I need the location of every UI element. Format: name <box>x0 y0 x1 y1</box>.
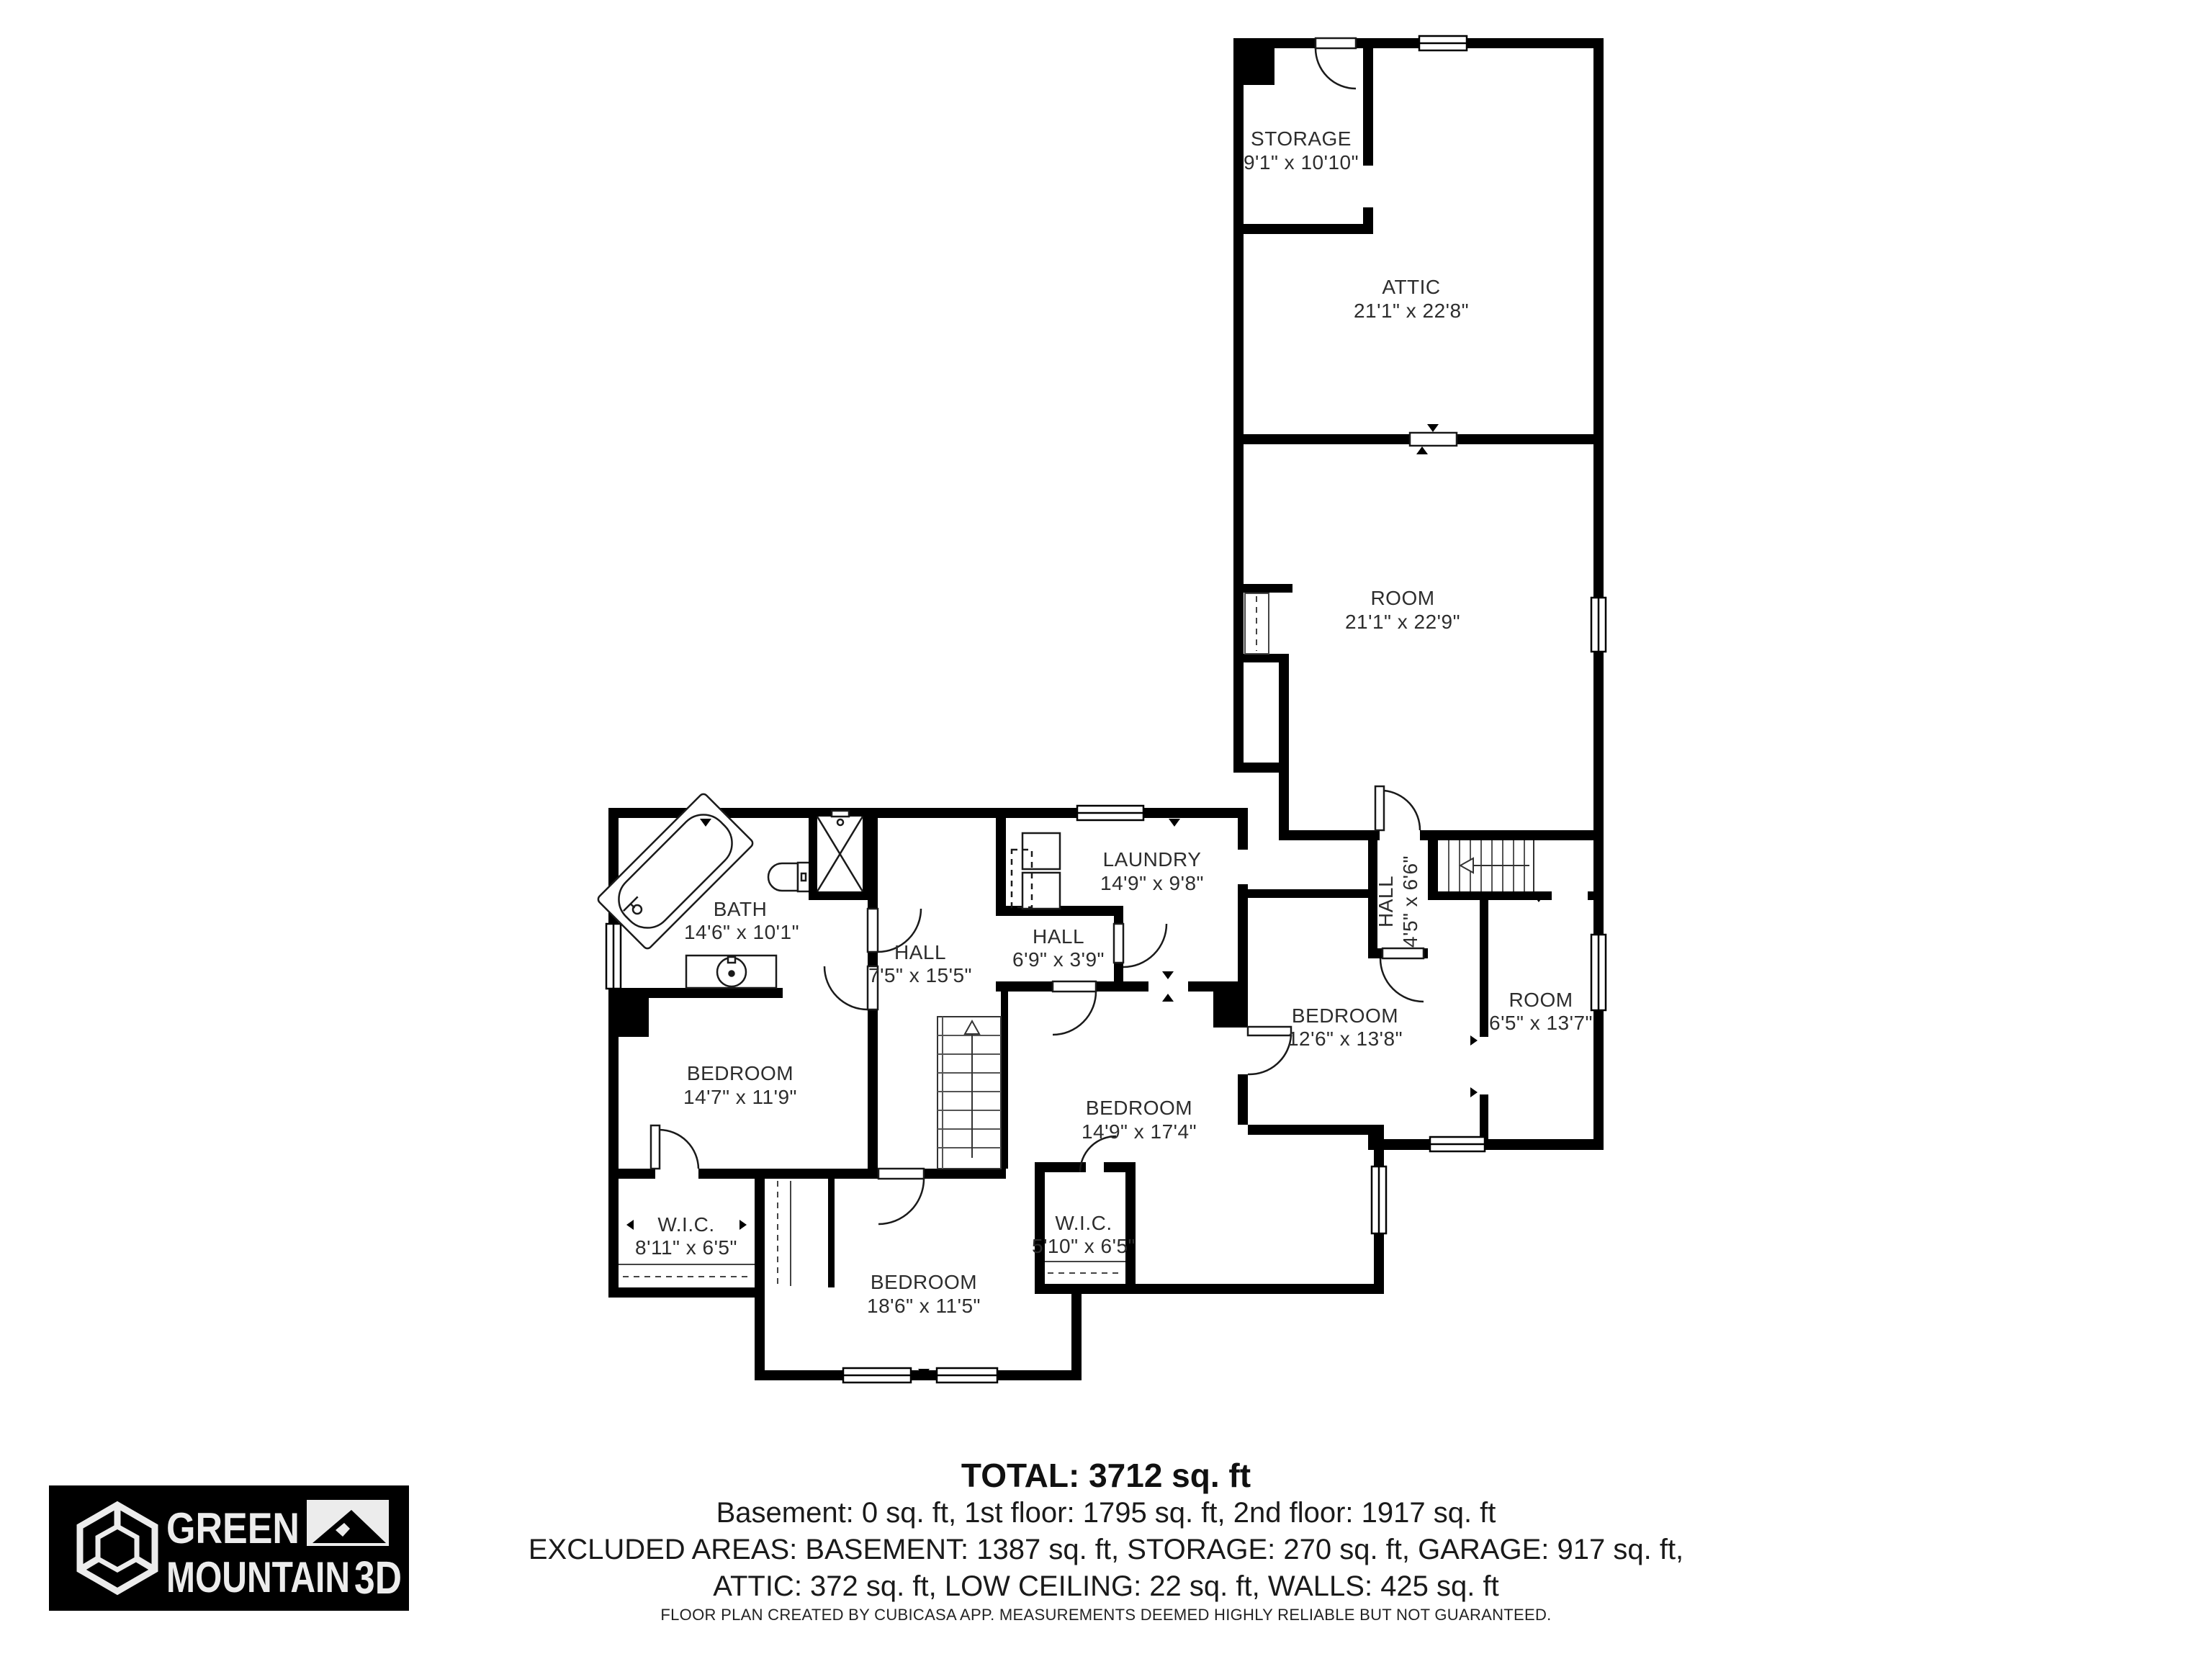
door <box>1380 948 1424 1002</box>
washer-icon <box>1022 833 1060 869</box>
room-label: ATTIC <box>1382 276 1440 298</box>
room-label: W.I.C. <box>657 1213 714 1236</box>
logo-graphic: GREEN MOUNTAIN 3D <box>49 1485 409 1611</box>
room-label: BEDROOM <box>1086 1097 1192 1119</box>
room-label: BEDROOM <box>1292 1004 1398 1027</box>
walls <box>608 38 1604 1380</box>
door <box>878 1169 924 1224</box>
room-dims: 4'5" x 6'6" <box>1399 855 1421 948</box>
room-label: HALL <box>894 941 946 963</box>
room-dims: 14'9" x 17'4" <box>1082 1120 1197 1143</box>
mountain-icon <box>307 1500 389 1546</box>
logo-word-green: GREEN <box>166 1504 300 1552</box>
toilet-icon <box>768 863 810 891</box>
shower-icon <box>809 808 871 900</box>
room-dims: 6'9" x 3'9" <box>1012 948 1105 971</box>
floor-plan-page: STORAGE 9'1" x 10'10" ATTIC 21'1" x 22'8… <box>0 0 2212 1659</box>
logo-suffix-3d: 3D <box>354 1552 402 1604</box>
room-label: STORAGE <box>1251 127 1352 150</box>
room-label: BEDROOM <box>687 1062 793 1084</box>
staircase-up <box>938 1017 1001 1169</box>
window-icon <box>937 1368 997 1382</box>
door <box>651 1125 698 1179</box>
room-dims: 14'7" x 11'9" <box>683 1086 797 1108</box>
window-icon <box>1591 598 1606 652</box>
room-label: ROOM <box>1370 587 1434 609</box>
room-label: LAUNDRY <box>1103 848 1202 871</box>
door <box>1316 38 1356 89</box>
logo-word-mountain: MOUNTAIN <box>166 1553 350 1601</box>
room-dims: 18'6" x 11'5" <box>867 1295 981 1317</box>
room-dims: 8'11" x 6'5" <box>635 1236 737 1259</box>
sink-icon <box>686 956 776 988</box>
room-label: HALL <box>1033 925 1084 948</box>
room-dims: 14'9" x 9'8" <box>1100 872 1204 894</box>
door <box>1114 924 1166 967</box>
floor-plan-drawing: STORAGE 9'1" x 10'10" ATTIC 21'1" x 22'8… <box>0 0 2212 1659</box>
window-icon <box>843 1368 911 1382</box>
door <box>1375 786 1420 840</box>
room-dims: 9'1" x 10'10" <box>1244 151 1359 174</box>
room-dims: 21'1" x 22'8" <box>1354 300 1469 322</box>
window-icon <box>1591 935 1606 1010</box>
room-label: BATH <box>714 898 768 920</box>
door <box>1410 433 1457 446</box>
staircase-down <box>1449 840 1534 891</box>
room-label: HALL <box>1375 876 1397 927</box>
room-label: BEDROOM <box>871 1271 977 1293</box>
window-icon <box>1077 806 1143 820</box>
green-mountain-3d-logo: GREEN MOUNTAIN 3D <box>49 1485 409 1611</box>
window-icon <box>1372 1166 1386 1233</box>
room-dims: 6'5" x 13'7" <box>1489 1012 1593 1034</box>
window-icon <box>1419 36 1467 50</box>
door <box>1053 981 1096 1035</box>
room-label: ROOM <box>1509 989 1573 1011</box>
room-dims: 21'1" x 22'9" <box>1345 611 1460 633</box>
dryer-icon <box>1022 873 1060 909</box>
door <box>1238 1027 1291 1074</box>
fixtures <box>596 792 1060 988</box>
room-label: W.I.C. <box>1055 1212 1112 1234</box>
room-dims: 7'5" x 15'5" <box>868 964 972 986</box>
room-dims: 12'6" x 13'8" <box>1287 1028 1403 1050</box>
room-dims: 5'10" x 6'5" <box>1032 1235 1136 1257</box>
room-dims: 14'6" x 10'1" <box>684 921 799 943</box>
window-icon <box>606 924 621 989</box>
window-icon <box>1430 1137 1485 1151</box>
